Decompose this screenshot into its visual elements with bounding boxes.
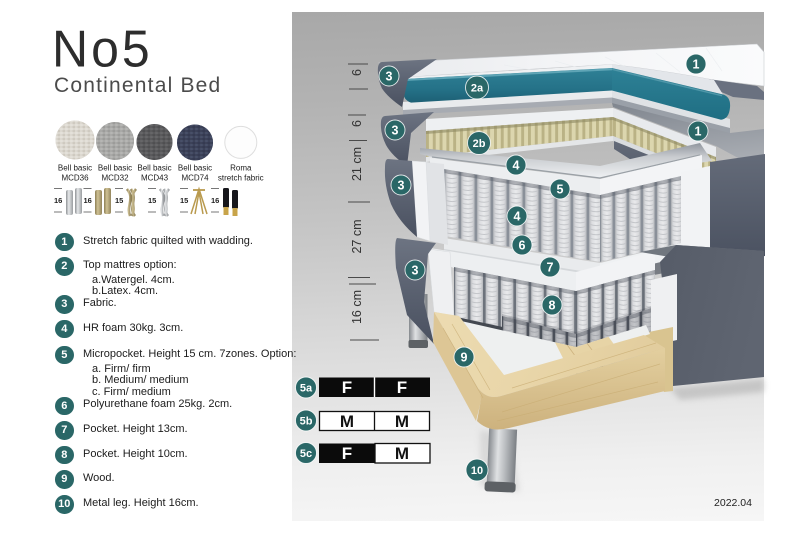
svg-text:F: F [342, 378, 352, 397]
svg-text:MCD32: MCD32 [101, 174, 129, 183]
svg-text:5c: 5c [300, 448, 312, 460]
svg-text:9: 9 [461, 350, 468, 364]
svg-text:2b: 2b [473, 138, 486, 150]
svg-text:21 cm: 21 cm [350, 147, 364, 181]
svg-text:5a: 5a [300, 382, 313, 394]
svg-text:M: M [395, 444, 409, 463]
svg-text:stretch fabric: stretch fabric [218, 174, 264, 183]
svg-text:7: 7 [547, 260, 554, 274]
svg-text:4: 4 [514, 209, 521, 223]
svg-text:4: 4 [513, 158, 520, 172]
svg-text:1: 1 [695, 124, 702, 138]
svg-text:MCD36: MCD36 [61, 174, 89, 183]
svg-text:MCD43: MCD43 [141, 174, 169, 183]
svg-text:Bell basic: Bell basic [58, 164, 92, 173]
svg-text:15: 15 [148, 196, 156, 205]
svg-text:27 cm: 27 cm [350, 219, 364, 253]
svg-text:16: 16 [84, 196, 92, 205]
svg-text:Bell basic: Bell basic [178, 164, 212, 173]
svg-text:M: M [395, 412, 409, 431]
svg-text:16: 16 [211, 196, 219, 205]
svg-text:2022.04: 2022.04 [714, 497, 752, 509]
svg-text:Bell basic: Bell basic [137, 164, 171, 173]
svg-text:5b: 5b [300, 415, 313, 427]
svg-text:F: F [397, 378, 407, 397]
svg-text:3: 3 [386, 69, 393, 83]
svg-text:2a: 2a [471, 82, 484, 94]
svg-text:Roma: Roma [230, 164, 252, 173]
svg-text:M: M [340, 412, 354, 431]
svg-text:6: 6 [519, 238, 526, 252]
svg-text:16 cm: 16 cm [350, 290, 364, 324]
svg-text:6: 6 [350, 120, 364, 127]
svg-text:F: F [342, 444, 352, 463]
svg-text:8: 8 [549, 298, 556, 312]
svg-text:3: 3 [412, 263, 419, 277]
svg-text:Bell basic: Bell basic [98, 164, 132, 173]
svg-text:16: 16 [54, 196, 62, 205]
svg-text:15: 15 [115, 196, 123, 205]
svg-text:3: 3 [392, 123, 399, 137]
svg-text:10: 10 [471, 465, 483, 477]
svg-text:1: 1 [693, 57, 700, 71]
svg-text:MCD74: MCD74 [181, 174, 209, 183]
svg-text:15: 15 [180, 196, 188, 205]
svg-text:5: 5 [557, 182, 564, 196]
svg-text:3: 3 [398, 178, 405, 192]
svg-text:6: 6 [350, 69, 364, 76]
